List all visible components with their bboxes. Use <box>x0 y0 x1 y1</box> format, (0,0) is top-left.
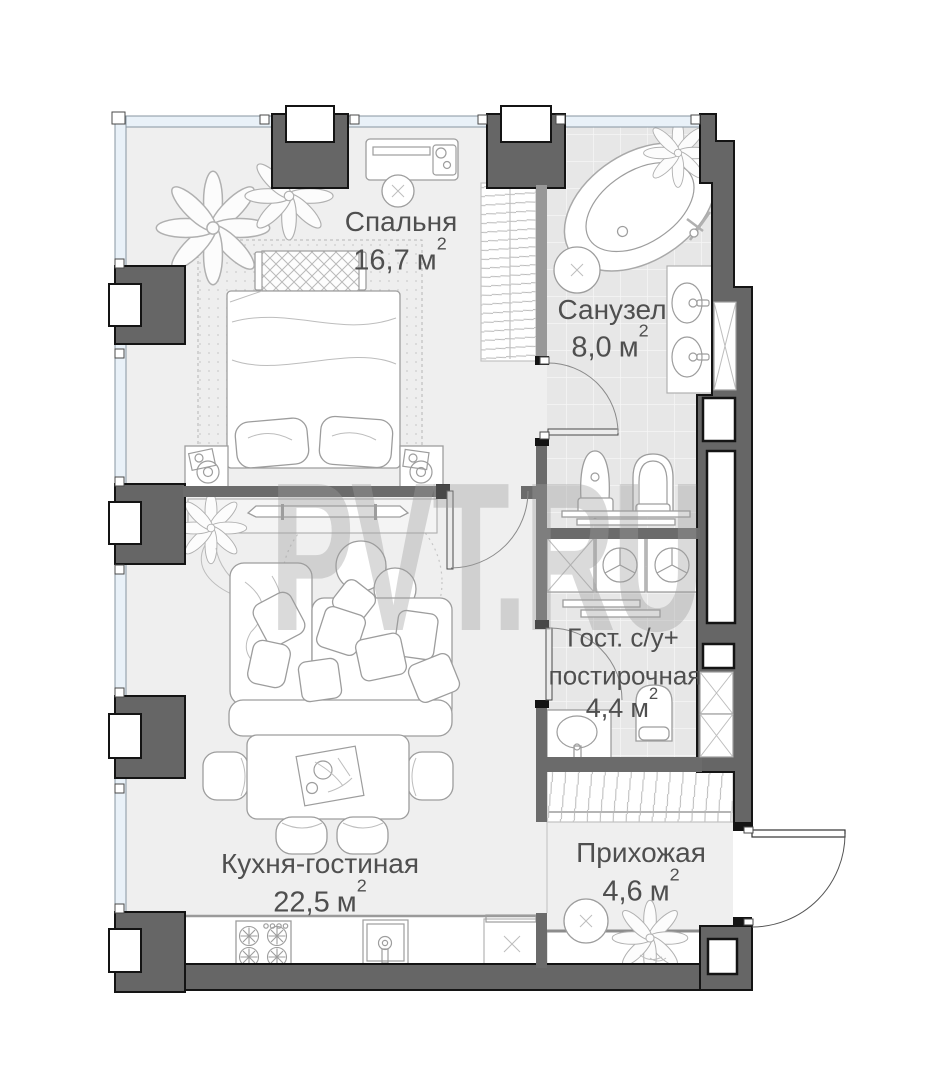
room-label-guest-wc-line1: Гост. с/у+ <box>567 623 679 654</box>
room-area-bedroom: 16,7м2 <box>353 243 446 278</box>
room-area-kitchen-living: 22,5м2 <box>273 885 366 920</box>
partition-laundry-hall <box>536 757 702 772</box>
window-band-top <box>115 116 700 127</box>
wall-bottom <box>115 964 752 990</box>
room-label-hallway: Прихожая <box>576 837 706 869</box>
stove <box>236 921 291 967</box>
shaft-box <box>703 644 734 668</box>
room-label-bathroom: Санузел <box>557 294 666 326</box>
bedroom-wardrobe <box>481 183 536 361</box>
room-label-guest-wc-line2: постирочная <box>549 661 702 692</box>
nightstand-left <box>185 446 228 488</box>
floor-plan: PVT.RU Спальня 16,7м2 Санузел 8,0м2 Гост… <box>0 0 939 1080</box>
kitchen-counter <box>185 915 538 967</box>
room-area-guest-wc: 4,4м2 <box>586 692 658 724</box>
shaft-box <box>708 939 737 974</box>
shaft-box <box>703 398 735 441</box>
room-label-kitchen-living: Кухня-гостиная <box>221 848 419 880</box>
double-sink-vanity <box>667 266 714 393</box>
partition-closet-bath <box>536 185 547 360</box>
room-area-hallway: 4,6м2 <box>602 874 679 909</box>
headboard-bench <box>262 251 359 291</box>
room-area-bathroom: 8,0м2 <box>571 330 648 365</box>
shaft-tall <box>707 451 735 623</box>
refrigerator <box>484 915 538 967</box>
entrance-door <box>744 827 845 927</box>
hallway-closet <box>547 768 733 822</box>
